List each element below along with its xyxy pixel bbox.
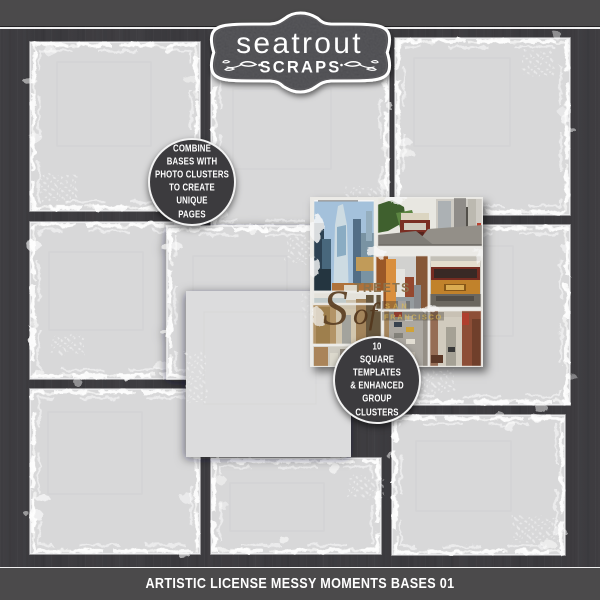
svg-text:SCRAPS: SCRAPS bbox=[260, 59, 342, 77]
svg-text:TREETS: TREETS bbox=[354, 281, 411, 295]
svg-text:S: S bbox=[323, 279, 348, 335]
svg-text:FRANCISCO: FRANCISCO bbox=[384, 313, 443, 322]
svg-text:seatrout: seatrout bbox=[236, 27, 363, 60]
svg-text:SAN: SAN bbox=[385, 302, 410, 311]
